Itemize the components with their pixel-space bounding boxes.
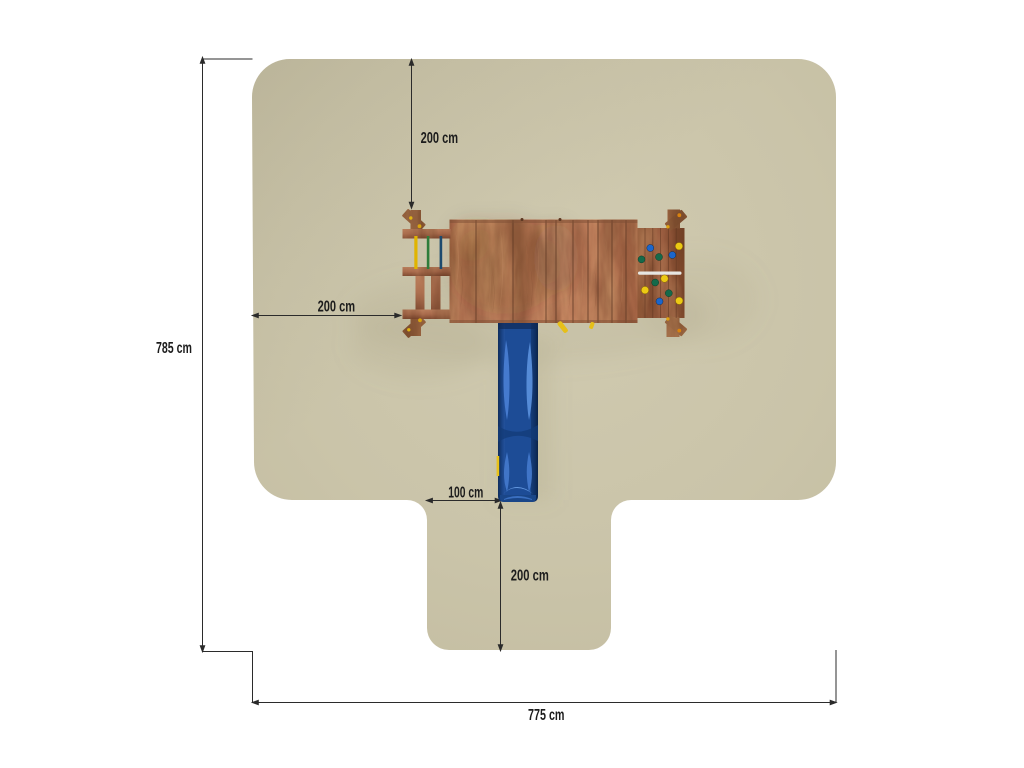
svg-text:200 cm: 200 cm (511, 568, 549, 585)
svg-text:785 cm: 785 cm (156, 340, 192, 357)
svg-text:775 cm: 775 cm (528, 707, 565, 724)
svg-text:100 cm: 100 cm (448, 485, 483, 502)
svg-text:200 cm: 200 cm (318, 298, 356, 315)
svg-text:200 cm: 200 cm (421, 130, 459, 147)
